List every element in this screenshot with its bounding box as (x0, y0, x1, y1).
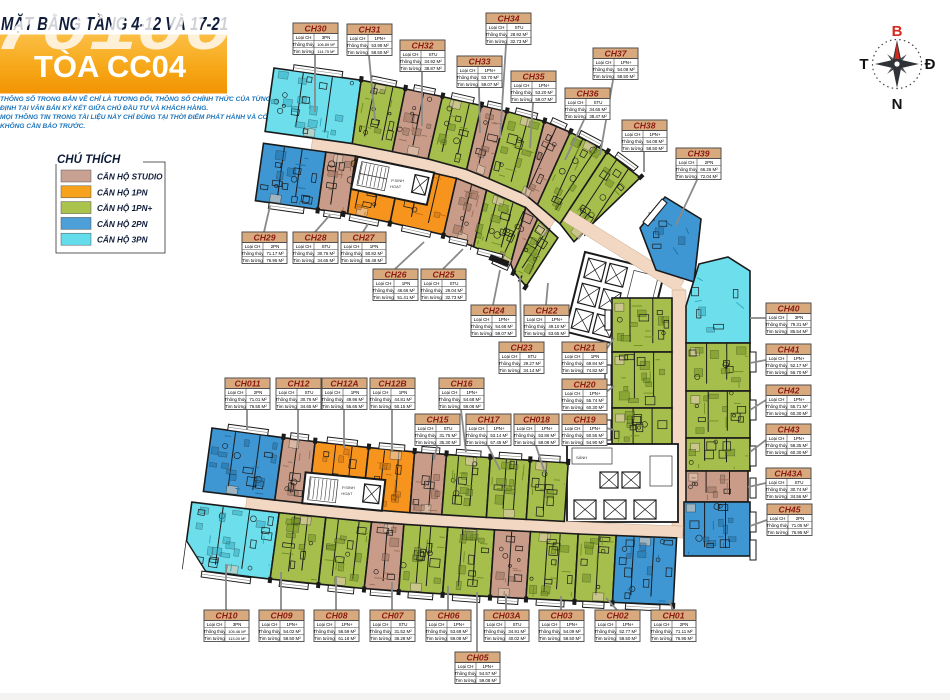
svg-text:Loại CH: Loại CH (514, 83, 530, 88)
svg-text:N: N (892, 96, 903, 113)
svg-text:1PN+: 1PN+ (620, 60, 632, 65)
svg-text:59.07 M²: 59.07 M² (495, 331, 513, 336)
svg-text:STU: STU (429, 52, 438, 57)
svg-text:Loại CH: Loại CH (487, 622, 503, 627)
svg-text:STU: STU (305, 390, 314, 395)
svg-text:34.92 M²: 34.92 M² (424, 59, 442, 64)
svg-text:2PN: 2PN (796, 516, 805, 521)
svg-text:70100: 70100 (0, 0, 232, 63)
svg-text:CH06: CH06 (438, 610, 460, 620)
svg-text:Loại CH: Loại CH (344, 244, 360, 249)
svg-text:Thông thủy: Thông thủy (439, 397, 462, 402)
svg-text:Thông thủy: Thông thủy (415, 433, 438, 438)
svg-text:54.08 M²: 54.08 M² (617, 67, 635, 72)
svg-text:57.45 M²: 57.45 M² (490, 440, 508, 445)
svg-text:Thông thủy: Thông thủy (370, 397, 393, 402)
svg-text:Loại CH: Loại CH (429, 622, 445, 627)
svg-text:Tim tường: Tim tường (593, 74, 614, 79)
svg-text:58.50 M²: 58.50 M² (283, 636, 301, 641)
svg-text:38.87 M²: 38.87 M² (424, 66, 442, 71)
svg-text:2PN: 2PN (271, 244, 280, 249)
svg-text:Tim tường: Tim tường (766, 329, 787, 334)
svg-text:CH38: CH38 (634, 120, 656, 130)
svg-text:Thông thủy: Thông thủy (622, 139, 645, 144)
svg-text:76.55 M²: 76.55 M² (249, 404, 267, 409)
svg-text:Loại CH: Loại CH (654, 622, 670, 627)
svg-text:1PN+: 1PN+ (374, 36, 386, 41)
svg-text:CH24: CH24 (483, 305, 505, 315)
svg-text:69.84 M²: 69.84 M² (586, 361, 604, 366)
svg-text:Loại CH: Loại CH (769, 315, 785, 320)
svg-text:Tim tường: Tim tường (484, 636, 505, 641)
svg-text:CHÚ THÍCH: CHÚ THÍCH (57, 153, 121, 166)
svg-text:Loại CH: Loại CH (296, 35, 312, 40)
svg-text:Loại CH: Loại CH (598, 622, 614, 627)
svg-text:Tim tường: Tim tường (499, 368, 520, 373)
svg-text:CH43A: CH43A (774, 468, 802, 478)
svg-text:113.00 M²: 113.00 M² (228, 636, 246, 641)
svg-text:Loại CH: Loại CH (403, 52, 419, 57)
svg-text:Thông thủy: Thông thủy (651, 629, 674, 634)
svg-text:54.09 M²: 54.09 M² (563, 629, 581, 634)
svg-text:Loại CH: Loại CH (458, 664, 474, 669)
svg-text:76.95 M²: 76.95 M² (266, 258, 284, 263)
svg-text:Thông thủy: Thông thủy (225, 397, 248, 402)
svg-text:Thông thủy: Thông thủy (204, 629, 227, 634)
svg-text:53.98 M²: 53.98 M² (371, 43, 389, 48)
svg-text:40.02 M²: 40.02 M² (508, 636, 526, 641)
svg-text:1PN+: 1PN+ (341, 622, 353, 627)
svg-text:Tim tường: Tim tường (539, 636, 560, 641)
svg-text:Tim tường: Tim tường (562, 405, 583, 410)
svg-text:STU: STU (515, 25, 524, 30)
svg-text:HOẠT: HOẠT (341, 491, 353, 496)
svg-text:1PN+: 1PN+ (453, 622, 465, 627)
svg-text:CĂN HỘ 3PN: CĂN HỘ 3PN (97, 234, 149, 245)
svg-text:Loại CH: Loại CH (596, 60, 612, 65)
svg-text:STU: STU (528, 354, 537, 359)
svg-text:CĂN HỘ 1PN: CĂN HỘ 1PN (97, 186, 149, 197)
svg-text:54.02 M²: 54.02 M² (283, 629, 301, 634)
svg-text:Thông thủy: Thông thủy (370, 629, 393, 634)
svg-text:1PN+: 1PN+ (482, 664, 494, 669)
svg-text:105.46 M²: 105.46 M² (228, 629, 246, 634)
svg-text:Loại CH: Loại CH (296, 244, 312, 249)
svg-text:Tim tường: Tim tường (204, 636, 225, 641)
svg-text:Thông thủy: Thông thủy (373, 288, 396, 293)
svg-text:3PN: 3PN (795, 315, 804, 320)
svg-text:CH09: CH09 (271, 610, 293, 620)
svg-text:CH02: CH02 (607, 610, 629, 620)
svg-text:CH40: CH40 (778, 303, 800, 313)
svg-text:Tim tường: Tim tường (565, 114, 586, 119)
svg-text:Loại CH: Loại CH (565, 391, 581, 396)
svg-text:Loại CH: Loại CH (625, 132, 641, 137)
svg-text:Tim tường: Tim tường (486, 39, 507, 44)
svg-text:58.35 M²: 58.35 M² (790, 443, 808, 448)
svg-text:32.73 M²: 32.73 M² (445, 295, 463, 300)
svg-text:CH12B: CH12B (378, 378, 406, 388)
svg-text:28.92 M²: 28.92 M² (510, 32, 528, 37)
svg-text:Loại CH: Loại CH (502, 354, 518, 359)
svg-text:CH34: CH34 (498, 13, 520, 23)
svg-text:Tim tường: Tim tường (457, 82, 478, 87)
svg-text:29.04 M²: 29.04 M² (445, 288, 463, 293)
svg-text:1PN+: 1PN+ (498, 317, 510, 322)
svg-text:50.55 M²: 50.55 M² (586, 433, 604, 438)
svg-text:51.41 M²: 51.41 M² (397, 295, 415, 300)
svg-text:71.05 M²: 71.05 M² (791, 523, 809, 528)
svg-text:Thông thủy: Thông thủy (471, 324, 494, 329)
svg-text:Loại CH: Loại CH (489, 25, 505, 30)
svg-text:Thông thủy: Thông thủy (486, 32, 509, 37)
svg-text:31.75 M²: 31.75 M² (439, 433, 457, 438)
svg-text:Tim tường: Tim tường (466, 440, 487, 445)
svg-text:CH35: CH35 (523, 71, 545, 81)
svg-text:Thông thủy: Thông thủy (400, 59, 423, 64)
svg-text:Tim tường: Tim tường (373, 295, 394, 300)
svg-text:Tim tường: Tim tường (524, 331, 545, 336)
svg-text:Tim tường: Tim tường (314, 636, 335, 641)
svg-text:Thông thủy: Thông thủy (421, 288, 444, 293)
svg-text:Thông thủy: Thông thủy (455, 671, 478, 676)
svg-text:2PN: 2PN (705, 160, 714, 165)
svg-text:44.81 M²: 44.81 M² (394, 397, 412, 402)
svg-text:P.SINH: P.SINH (391, 178, 404, 183)
svg-text:Loại CH: Loại CH (317, 622, 333, 627)
svg-text:Loại CH: Loại CH (770, 516, 786, 521)
svg-text:79.31 M²: 79.31 M² (790, 322, 808, 327)
svg-text:50.15 M²: 50.15 M² (394, 404, 412, 409)
svg-text:1PN+: 1PN+ (484, 68, 496, 73)
svg-text:1PN+: 1PN+ (466, 390, 478, 395)
svg-text:59.08 M²: 59.08 M² (463, 404, 481, 409)
svg-text:30.76 M²: 30.76 M² (300, 397, 318, 402)
svg-text:Thông thủy: Thông thủy (593, 67, 616, 72)
svg-text:Thông thủy: Thông thủy (466, 433, 489, 438)
svg-text:60.30 M²: 60.30 M² (790, 411, 808, 416)
svg-text:Tim tường: Tim tường (622, 146, 643, 151)
svg-text:Tim tường: Tim tường (439, 404, 460, 409)
svg-text:106.89 M²: 106.89 M² (317, 42, 335, 47)
svg-text:Tim tường: Tim tường (322, 404, 343, 409)
svg-text:49.10 M²: 49.10 M² (548, 324, 566, 329)
svg-text:Thông thủy: Thông thủy (595, 629, 618, 634)
svg-text:Thông thủy: Thông thủy (676, 167, 699, 172)
svg-text:CH45: CH45 (779, 504, 801, 514)
svg-text:32.73 M²: 32.73 M² (510, 39, 528, 44)
svg-text:CH03: CH03 (551, 610, 573, 620)
svg-text:SẢNH: SẢNH (576, 455, 587, 460)
svg-text:58.50 M²: 58.50 M² (617, 74, 635, 79)
svg-text:Tim tường: Tim tường (766, 450, 787, 455)
svg-text:Loại CH: Loại CH (769, 397, 785, 402)
svg-text:35.30 M²: 35.30 M² (439, 440, 457, 445)
svg-text:CH011: CH011 (234, 378, 260, 388)
svg-text:50.82 M²: 50.82 M² (365, 251, 383, 256)
svg-text:59.08 M²: 59.08 M² (538, 440, 556, 445)
svg-text:1PN+: 1PN+ (589, 391, 601, 396)
svg-text:Loại CH: Loại CH (279, 390, 295, 395)
svg-text:Thông thủy: Thông thủy (484, 629, 507, 634)
svg-text:59.08 M²: 59.08 M² (479, 678, 497, 683)
svg-text:Loại CH: Loại CH (474, 317, 490, 322)
svg-text:3PN: 3PN (322, 35, 331, 40)
svg-text:1PN: 1PN (399, 390, 408, 395)
svg-text:Tim tường: Tim tường (651, 636, 672, 641)
svg-text:Thông thủy: Thông thủy (539, 629, 562, 634)
svg-text:CH25: CH25 (433, 269, 455, 279)
svg-text:114.75 M²: 114.75 M² (317, 49, 335, 54)
svg-text:71.01 M²: 71.01 M² (249, 397, 267, 402)
svg-text:Tim tường: Tim tường (225, 404, 246, 409)
svg-text:30.74 M²: 30.74 M² (790, 487, 808, 492)
svg-text:34.91 M²: 34.91 M² (508, 629, 526, 634)
svg-text:Thông thủy: Thông thủy (457, 75, 480, 80)
svg-text:Thông thủy: Thông thủy (562, 361, 585, 366)
svg-text:54.90 M²: 54.90 M² (586, 440, 604, 445)
svg-text:Thông thủy: Thông thủy (314, 629, 337, 634)
svg-text:1PN+: 1PN+ (622, 622, 634, 627)
svg-text:CH08: CH08 (326, 610, 348, 620)
svg-text:Thông thủy: Thông thủy (767, 523, 790, 528)
svg-text:Loại CH: Loại CH (527, 317, 543, 322)
svg-text:1PN+: 1PN+ (589, 426, 601, 431)
svg-text:STU: STU (513, 622, 522, 627)
svg-text:CH23: CH23 (511, 342, 533, 352)
svg-text:CH16: CH16 (451, 378, 473, 388)
svg-text:Loại CH: Loại CH (542, 622, 558, 627)
svg-text:Loại CH: Loại CH (350, 36, 366, 41)
svg-text:2PN: 2PN (680, 622, 689, 627)
svg-text:53.65 M²: 53.65 M² (548, 331, 566, 336)
svg-text:Thông thủy: Thông thủy (766, 363, 789, 368)
svg-text:Tim tường: Tim tường (455, 678, 476, 683)
svg-text:1PN: 1PN (402, 281, 411, 286)
svg-text:74.82 M²: 74.82 M² (586, 368, 604, 373)
svg-text:30.76 M²: 30.76 M² (317, 251, 335, 256)
svg-text:P.SINH: P.SINH (342, 485, 355, 490)
svg-text:STU: STU (322, 244, 331, 249)
svg-text:Thông thủy: Thông thủy (322, 397, 345, 402)
svg-text:Tim tường: Tim tường (514, 440, 535, 445)
svg-text:CH32: CH32 (412, 40, 434, 50)
svg-text:59.07 M²: 59.07 M² (481, 82, 499, 87)
svg-text:85.54 M²: 85.54 M² (790, 329, 808, 334)
svg-text:CH03A: CH03A (492, 610, 520, 620)
svg-text:CH19: CH19 (574, 414, 596, 424)
svg-text:49.96 M²: 49.96 M² (346, 397, 364, 402)
svg-text:72.04 M²: 72.04 M² (700, 174, 718, 179)
svg-text:Tim tường: Tim tường (471, 331, 492, 336)
svg-text:CĂN HỘ STUDIO: CĂN HỘ STUDIO (97, 171, 163, 182)
svg-text:CH30: CH30 (305, 23, 327, 33)
svg-text:34.65 M²: 34.65 M² (300, 404, 318, 409)
svg-text:Loại CH: Loại CH (228, 390, 244, 395)
svg-text:Loại CH: Loại CH (565, 354, 581, 359)
svg-text:38.47 M²: 38.47 M² (589, 114, 607, 119)
svg-text:Thông thủy: Thông thủy (514, 433, 537, 438)
svg-text:Thông thủy: Thông thủy (293, 42, 316, 47)
svg-text:Thông thủy: Thông thủy (511, 90, 534, 95)
svg-text:36.28 M²: 36.28 M² (394, 636, 412, 641)
svg-text:Tim tường: Tim tường (676, 174, 697, 179)
svg-text:61.18 M²: 61.18 M² (338, 636, 356, 641)
svg-text:54.68 M²: 54.68 M² (463, 397, 481, 402)
svg-text:CH29: CH29 (254, 232, 276, 242)
svg-text:Tim tường: Tim tường (259, 636, 280, 641)
svg-text:66.26 M²: 66.26 M² (700, 167, 718, 172)
svg-text:Loại CH: Loại CH (679, 160, 695, 165)
svg-text:60.30 M²: 60.30 M² (586, 405, 604, 410)
svg-text:CH37: CH37 (605, 48, 628, 58)
svg-text:1PN+: 1PN+ (286, 622, 298, 627)
svg-text:Tim tường: Tim tường (426, 636, 447, 641)
svg-text:Tim tường: Tim tường (511, 97, 532, 102)
svg-text:Loại CH: Loại CH (373, 390, 389, 395)
svg-text:Tim tường: Tim tường (293, 49, 314, 54)
svg-text:1PN: 1PN (351, 390, 360, 395)
svg-text:Tim tường: Tim tường (341, 258, 362, 263)
svg-text:Thông thủy: Thông thủy (524, 324, 547, 329)
svg-text:Loại CH: Loại CH (442, 390, 458, 395)
svg-text:CH39: CH39 (688, 148, 710, 158)
svg-text:Thông thủy: Thông thủy (499, 361, 522, 366)
svg-text:53.70 M²: 53.70 M² (481, 75, 499, 80)
svg-text:1PN+: 1PN+ (566, 622, 578, 627)
svg-text:Loại CH: Loại CH (373, 622, 389, 627)
svg-text:CH15: CH15 (427, 414, 449, 424)
svg-text:59.07 M²: 59.07 M² (535, 97, 553, 102)
svg-text:Loại CH: Loại CH (325, 390, 341, 395)
svg-text:CH26: CH26 (385, 269, 407, 279)
svg-text:34.56 M²: 34.56 M² (790, 494, 808, 499)
svg-text:54.08 M²: 54.08 M² (646, 139, 664, 144)
svg-text:Loại CH: Loại CH (460, 68, 476, 73)
svg-text:STU: STU (444, 426, 453, 431)
svg-text:STU: STU (594, 100, 603, 105)
svg-text:1PN+: 1PN+ (493, 426, 505, 431)
svg-text:Loại CH: Loại CH (469, 426, 485, 431)
svg-text:Loại CH: Loại CH (418, 426, 434, 431)
svg-text:CH33: CH33 (469, 56, 491, 66)
svg-text:Thông thủy: Thông thủy (259, 629, 282, 634)
svg-text:Loại CH: Loại CH (769, 356, 785, 361)
svg-text:STU: STU (450, 281, 459, 286)
svg-text:1PN+: 1PN+ (793, 356, 805, 361)
svg-text:Loại CH: Loại CH (769, 480, 785, 485)
svg-text:CH05: CH05 (467, 652, 489, 662)
svg-text:CH01: CH01 (663, 610, 685, 620)
svg-text:54.57 M²: 54.57 M² (479, 671, 497, 676)
svg-text:1PN+: 1PN+ (538, 83, 550, 88)
svg-text:Tim tường: Tim tường (562, 368, 583, 373)
svg-text:Tim tường: Tim tường (766, 411, 787, 416)
svg-text:HOẠT: HOẠT (390, 184, 402, 189)
svg-text:CĂN HỘ 2PN: CĂN HỘ 2PN (97, 218, 149, 229)
svg-text:60.30 M²: 60.30 M² (790, 450, 808, 455)
svg-text:Tim tường: Tim tường (347, 50, 368, 55)
svg-text:CH018: CH018 (523, 414, 550, 424)
svg-text:Thông thủy: Thông thủy (766, 404, 789, 409)
svg-text:Thông thủy: Thông thủy (293, 251, 316, 256)
svg-text:B: B (892, 23, 903, 40)
svg-text:Loại CH: Loại CH (424, 281, 440, 286)
svg-text:Tim tường: Tim tường (293, 258, 314, 263)
svg-text:Thông thủy: Thông thủy (347, 43, 370, 48)
svg-text:Tim tường: Tim tường (766, 370, 787, 375)
svg-text:Loại CH: Loại CH (245, 244, 261, 249)
svg-text:34.14 M²: 34.14 M² (523, 368, 541, 373)
svg-text:55.71 M²: 55.71 M² (790, 404, 808, 409)
svg-text:76.95 M²: 76.95 M² (675, 636, 693, 641)
svg-text:Loại CH: Loại CH (376, 281, 392, 286)
svg-text:Tim tường: Tim tường (242, 258, 263, 263)
svg-text:58.50 M²: 58.50 M² (371, 50, 389, 55)
svg-text:Tim tường: Tim tường (400, 66, 421, 71)
svg-text:STU: STU (399, 622, 408, 627)
svg-text:Loại CH: Loại CH (262, 622, 278, 627)
svg-text:55.65 M²: 55.65 M² (346, 404, 364, 409)
svg-text:54.68 M²: 54.68 M² (495, 324, 513, 329)
svg-text:Tim tường: Tim tường (766, 494, 787, 499)
svg-text:29.27 M²: 29.27 M² (523, 361, 541, 366)
svg-text:1PN+: 1PN+ (649, 132, 661, 137)
svg-text:3PN: 3PN (233, 622, 242, 627)
svg-text:CH10: CH10 (216, 610, 238, 620)
svg-text:CH27: CH27 (353, 232, 376, 242)
svg-text:58.50 M²: 58.50 M² (619, 636, 637, 641)
svg-text:52.17 M²: 52.17 M² (790, 363, 808, 368)
svg-text:Tim tường: Tim tường (370, 404, 391, 409)
svg-text:CH41: CH41 (778, 344, 800, 354)
svg-text:55.74 M²: 55.74 M² (586, 398, 604, 403)
svg-text:52.77 M²: 52.77 M² (619, 629, 637, 634)
svg-text:Tim tường: Tim tường (415, 440, 436, 445)
svg-text:CH36: CH36 (577, 88, 599, 98)
svg-text:Tim tường: Tim tường (562, 440, 583, 445)
svg-text:Thông thủy: Thông thủy (766, 487, 789, 492)
svg-text:Thông thủy: Thông thủy (565, 107, 588, 112)
svg-text:34.65 M²: 34.65 M² (317, 258, 335, 263)
svg-text:Loại CH: Loại CH (769, 436, 785, 441)
svg-text:CH42: CH42 (778, 385, 800, 395)
svg-text:CH22: CH22 (536, 305, 558, 315)
svg-text:1PN+: 1PN+ (793, 436, 805, 441)
svg-text:Thông thủy: Thông thủy (426, 629, 449, 634)
svg-text:53.68 M²: 53.68 M² (450, 629, 468, 634)
svg-text:Tim tường: Tim tường (767, 530, 788, 535)
svg-text:Loại CH: Loại CH (568, 100, 584, 105)
svg-text:Thông thủy: Thông thủy (562, 433, 585, 438)
svg-text:53.86 M²: 53.86 M² (538, 433, 556, 438)
svg-text:STU: STU (795, 480, 804, 485)
svg-text:Thông thủy: Thông thủy (341, 251, 364, 256)
svg-text:Thông thủy: Thông thủy (276, 397, 299, 402)
svg-text:Tim tường: Tim tường (276, 404, 297, 409)
svg-text:Tim tường: Tim tường (595, 636, 616, 641)
svg-text:76.95 M²: 76.95 M² (791, 530, 809, 535)
svg-text:CH12A: CH12A (330, 378, 358, 388)
svg-text:Loại CH: Loại CH (565, 426, 581, 431)
svg-text:Thông thủy: Thông thủy (562, 398, 585, 403)
svg-text:CH43: CH43 (778, 424, 800, 434)
svg-text:Tim tường: Tim tường (370, 636, 391, 641)
svg-text:CH20: CH20 (574, 379, 596, 389)
svg-text:CH31: CH31 (359, 24, 381, 34)
svg-text:1PN: 1PN (370, 244, 379, 249)
svg-text:53.14 M²: 53.14 M² (490, 433, 508, 438)
